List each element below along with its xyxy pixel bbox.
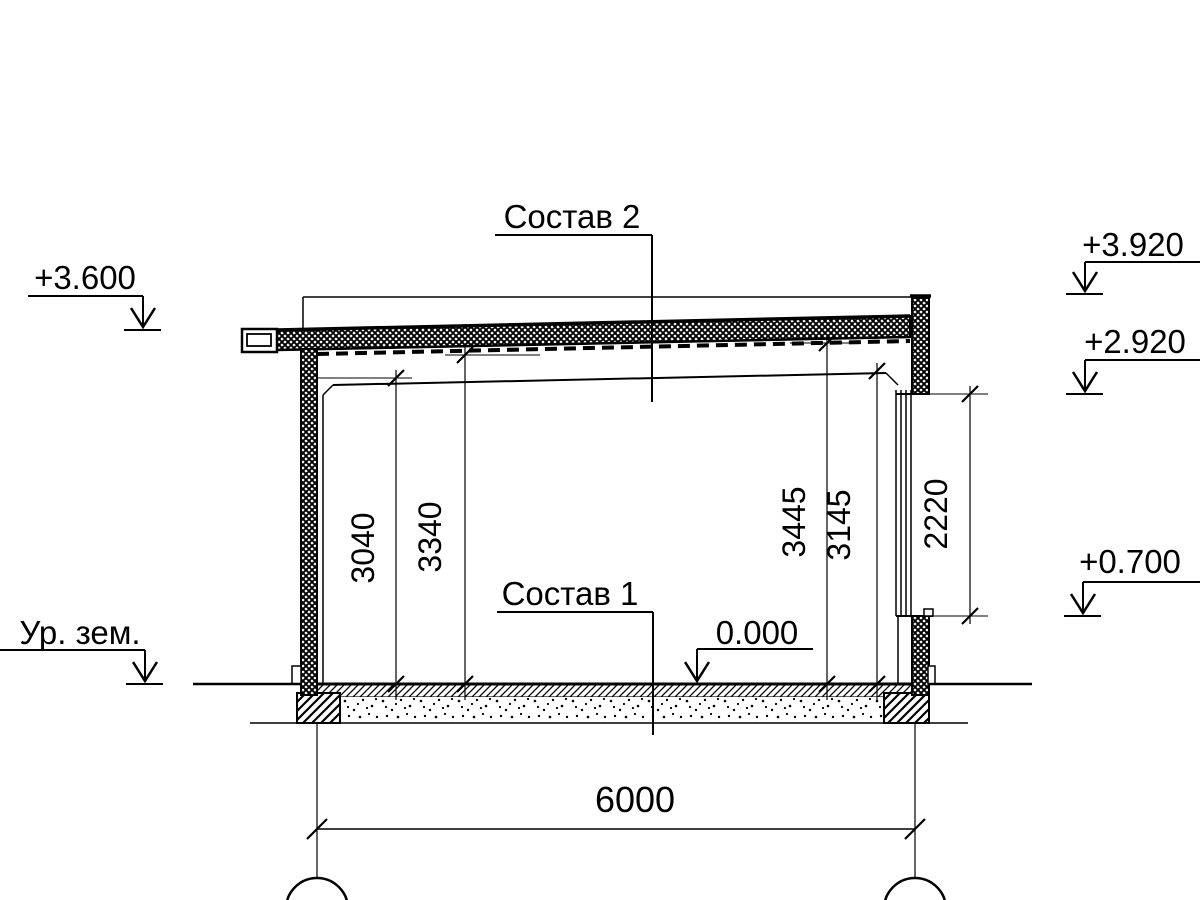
left-wall-plinth (292, 666, 301, 684)
elevation-floor-label: 0.000 (716, 614, 799, 651)
right-wall-plinth (928, 666, 935, 684)
elevation-window-sill-label: +0.700 (1079, 543, 1181, 580)
dim-ceiling-left: 3040 (317, 370, 412, 700)
right-wall-parapet-section (912, 298, 929, 394)
ceiling-chamfer-left (323, 385, 333, 395)
dim-2220-label: 2220 (918, 478, 954, 549)
building-section-drawing: 6000 3040 3340 3445 3145 2220 (0, 0, 1200, 900)
right-wall-sill-section (912, 616, 929, 695)
axis-bubble-right (884, 878, 946, 900)
left-wall-panel (301, 349, 317, 695)
roof-composition-label: Состав 2 (504, 198, 641, 235)
dim-3040-label: 3040 (345, 512, 381, 583)
foundation-right (884, 693, 929, 723)
elevation-mark-window-sill: +0.700 (1064, 543, 1200, 616)
dim-soffit-left: 3340 (412, 347, 540, 700)
dim-3445-label: 3445 (776, 486, 812, 557)
elevation-mark-eave: +3.600 (28, 259, 161, 330)
elevation-mark-window-head: +2.920 (1066, 323, 1200, 394)
floor-composition-label: Состав 1 (502, 575, 639, 612)
leader-roof-composition: Состав 2 (495, 198, 652, 402)
dim-3340-label: 3340 (412, 501, 448, 572)
dim-ceiling-right: 3145 (821, 363, 885, 700)
suspended-ceiling (323, 373, 898, 395)
dim-span: 6000 (307, 779, 925, 839)
elevation-eave-label: +3.600 (34, 259, 136, 296)
elevation-mark-ground: Ур. зем. (0, 614, 163, 684)
ceiling-line (333, 373, 886, 385)
elevation-ground-label: Ур. зем. (19, 614, 140, 651)
roof-assembly (242, 316, 910, 354)
left-wall (292, 349, 323, 695)
elevation-parapet-label: +3.920 (1082, 226, 1184, 263)
ceiling-chamfer-right (886, 373, 898, 385)
foundation-left (297, 693, 340, 723)
elevation-window-head-label: +2.920 (1084, 323, 1186, 360)
window-sill-drip (924, 609, 933, 616)
eave-fascia-inner (247, 334, 271, 346)
dim-3145-label: 3145 (821, 489, 857, 560)
axis-bubble-left (286, 878, 348, 900)
elevation-mark-floor: 0.000 (685, 614, 813, 681)
elevation-mark-parapet: +3.920 (1066, 226, 1200, 294)
floor-assembly (250, 684, 968, 723)
dim-span-label: 6000 (595, 779, 675, 820)
dim-window: 2220 (912, 386, 988, 624)
section-svg: 6000 3040 3340 3445 3145 2220 (0, 0, 1200, 900)
sand-base-layer (340, 697, 884, 722)
